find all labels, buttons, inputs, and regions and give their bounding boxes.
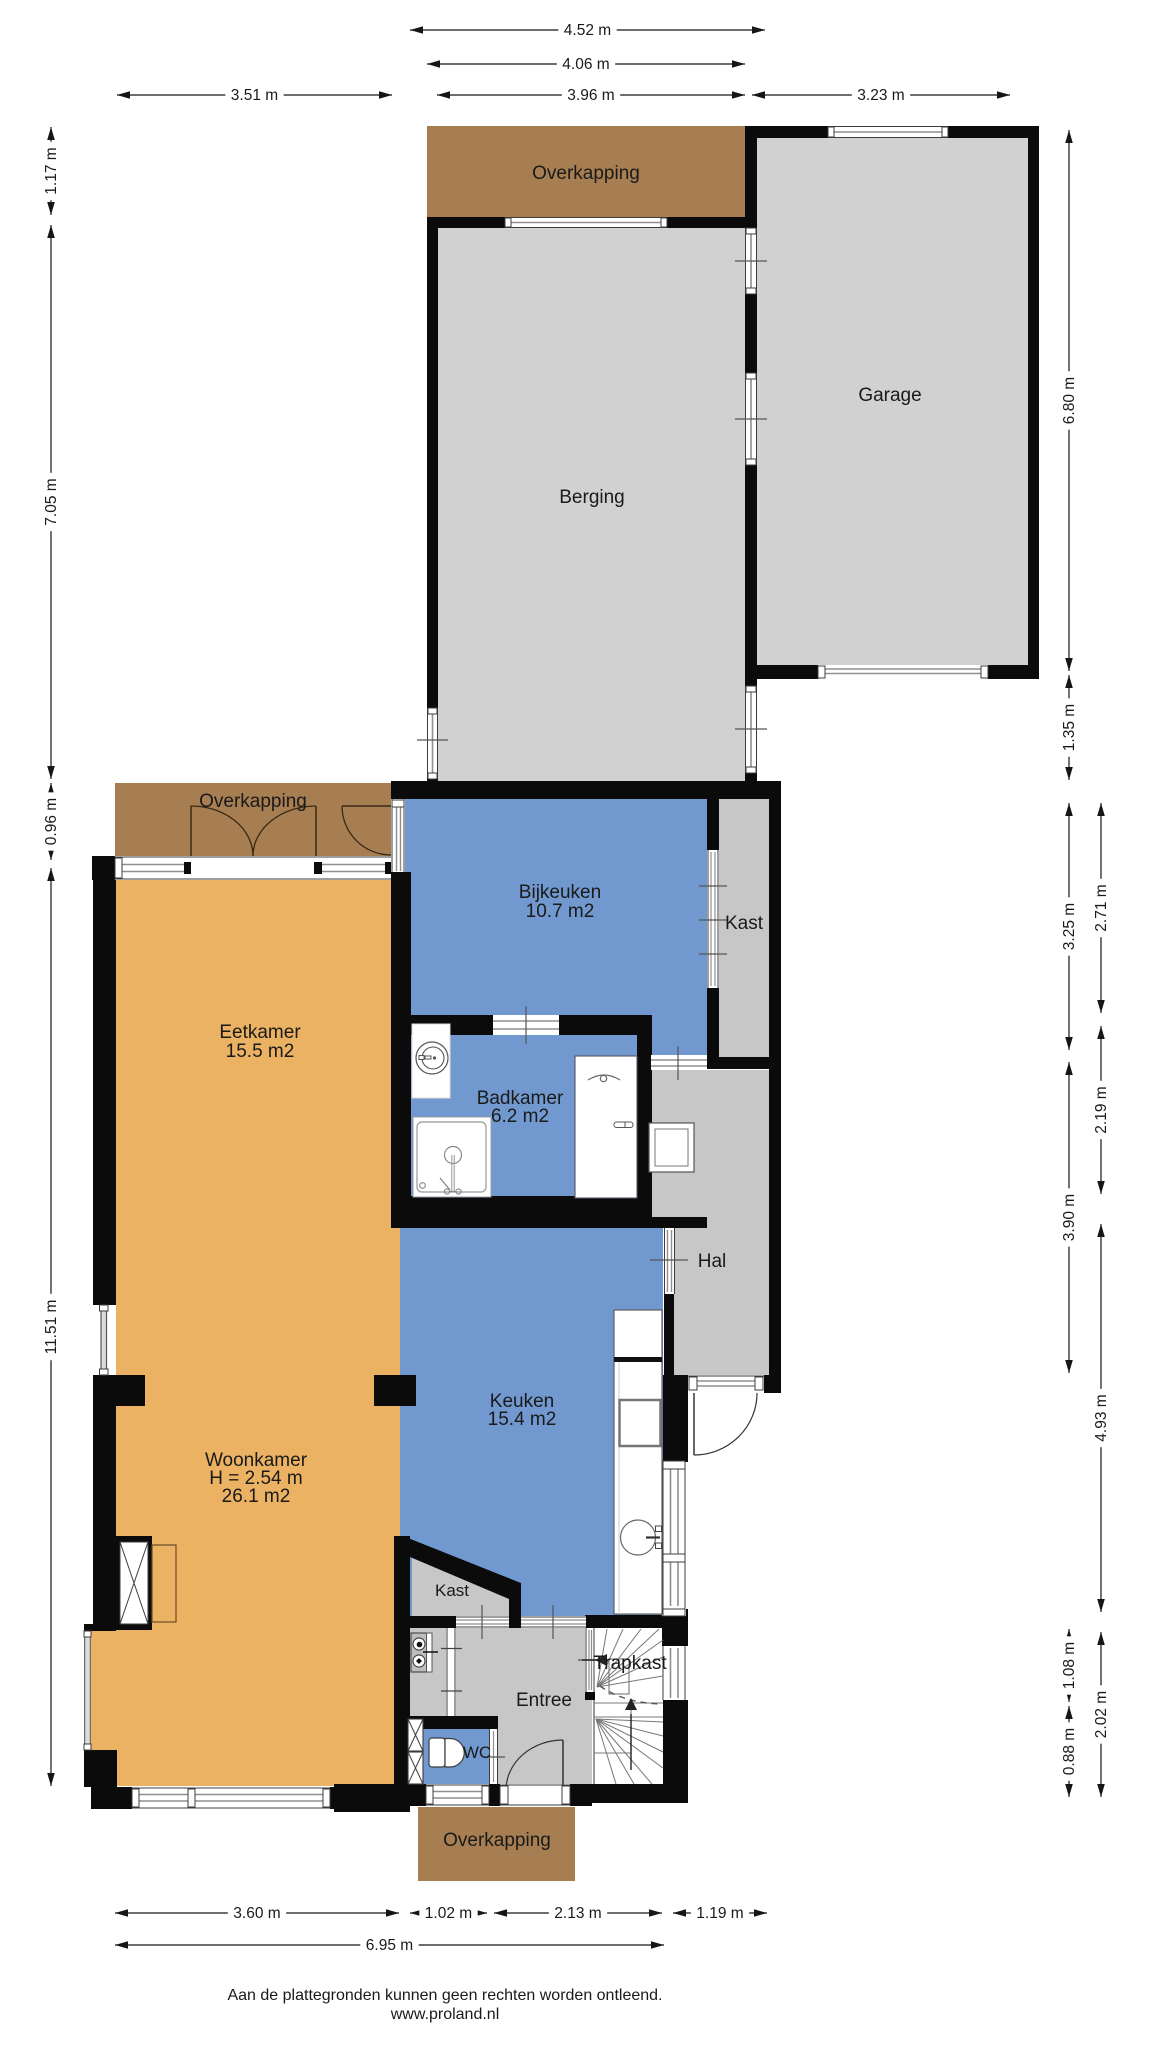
svg-text:Kast: Kast xyxy=(435,1581,469,1600)
svg-text:4.06 m: 4.06 m xyxy=(562,56,609,73)
svg-text:Overkapping: Overkapping xyxy=(443,1830,551,1851)
svg-text:15.4 m2: 15.4 m2 xyxy=(488,1409,557,1430)
svg-text:26.1 m2: 26.1 m2 xyxy=(222,1486,291,1507)
svg-text:Entree: Entree xyxy=(516,1690,572,1711)
svg-text:0.96 m: 0.96 m xyxy=(43,798,60,845)
svg-text:www.proland.nl: www.proland.nl xyxy=(390,2006,500,2023)
svg-text:7.05 m: 7.05 m xyxy=(43,478,60,525)
svg-text:1.35 m: 1.35 m xyxy=(1061,704,1078,751)
svg-text:3.60 m: 3.60 m xyxy=(233,1905,280,1922)
svg-text:Garage: Garage xyxy=(858,385,921,406)
svg-text:4.52 m: 4.52 m xyxy=(564,22,611,39)
svg-text:6.2 m2: 6.2 m2 xyxy=(491,1106,549,1127)
svg-text:3.23 m: 3.23 m xyxy=(857,87,904,104)
svg-text:3.96 m: 3.96 m xyxy=(567,87,614,104)
svg-text:3.51 m: 3.51 m xyxy=(231,87,278,104)
svg-text:3.90 m: 3.90 m xyxy=(1061,1194,1078,1241)
svg-text:3.25 m: 3.25 m xyxy=(1061,903,1078,950)
svg-text:1.08 m: 1.08 m xyxy=(1061,1642,1078,1689)
svg-text:Overkapping: Overkapping xyxy=(532,163,640,184)
svg-text:0.88 m: 0.88 m xyxy=(1061,1728,1078,1775)
svg-text:Eetkamer: Eetkamer xyxy=(219,1022,301,1043)
svg-text:Bijkeuken: Bijkeuken xyxy=(519,882,601,903)
svg-text:1.02 m: 1.02 m xyxy=(425,1905,472,1922)
svg-text:WC: WC xyxy=(463,1743,491,1762)
svg-text:2.71 m: 2.71 m xyxy=(1093,884,1110,931)
svg-text:Trapkast: Trapkast xyxy=(593,1653,667,1674)
svg-text:Kast: Kast xyxy=(725,913,764,934)
svg-text:6.80 m: 6.80 m xyxy=(1061,377,1078,424)
svg-text:2.19 m: 2.19 m xyxy=(1093,1086,1110,1133)
svg-text:Aan de plattegronden kunnen ge: Aan de plattegronden kunnen geen rechten… xyxy=(227,1987,662,2004)
svg-text:2.13 m: 2.13 m xyxy=(554,1905,601,1922)
svg-text:Overkapping: Overkapping xyxy=(199,791,307,812)
svg-text:10.7 m2: 10.7 m2 xyxy=(526,901,595,922)
svg-text:1.17 m: 1.17 m xyxy=(43,147,60,194)
svg-text:Hal: Hal xyxy=(698,1251,727,1272)
svg-text:6.95 m: 6.95 m xyxy=(366,1937,413,1954)
svg-text:1.19 m: 1.19 m xyxy=(696,1905,743,1922)
svg-text:11.51 m: 11.51 m xyxy=(43,1300,60,1355)
svg-text:4.93 m: 4.93 m xyxy=(1093,1394,1110,1441)
svg-text:15.5 m2: 15.5 m2 xyxy=(226,1041,295,1062)
svg-text:Berging: Berging xyxy=(559,487,625,508)
svg-text:2.02 m: 2.02 m xyxy=(1093,1691,1110,1738)
